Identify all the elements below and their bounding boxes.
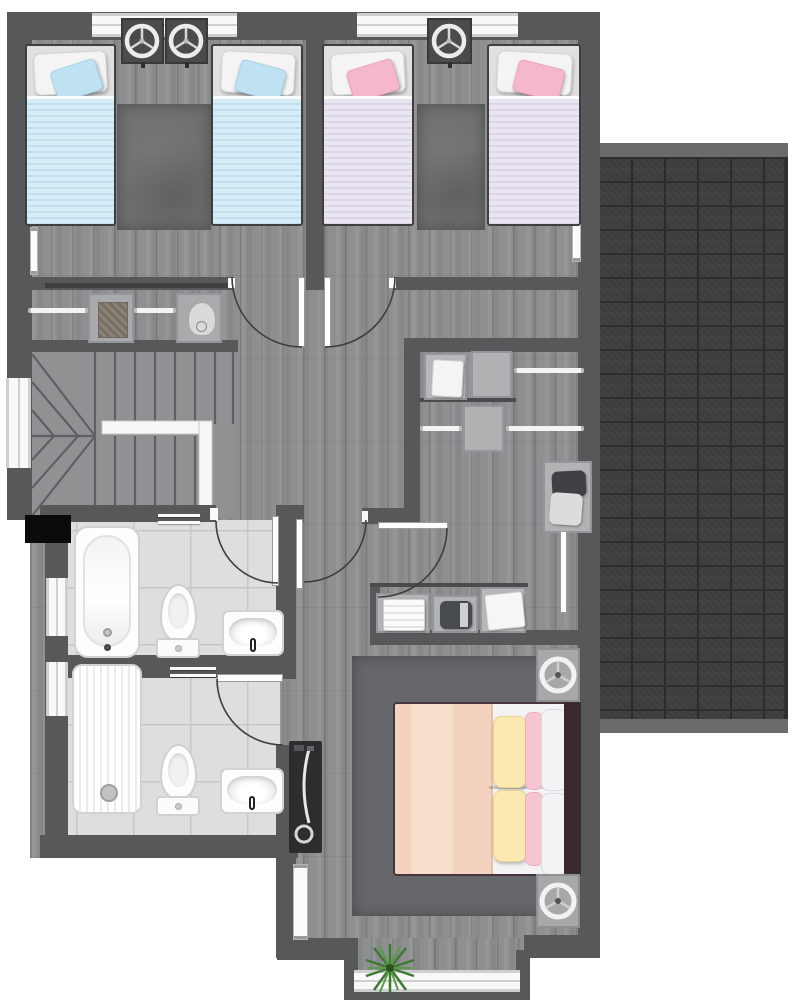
door-swing-arcs <box>0 0 800 1000</box>
swing-arc-hall <box>304 520 366 582</box>
swing-arc-kids-right <box>325 277 395 347</box>
swing-arc-kids-left <box>232 277 302 347</box>
swing-arc-walkway <box>378 528 447 597</box>
swing-arc-bath-bottom <box>217 679 283 745</box>
swing-arc-bath-top <box>216 521 278 583</box>
floor-plan <box>0 0 800 1000</box>
